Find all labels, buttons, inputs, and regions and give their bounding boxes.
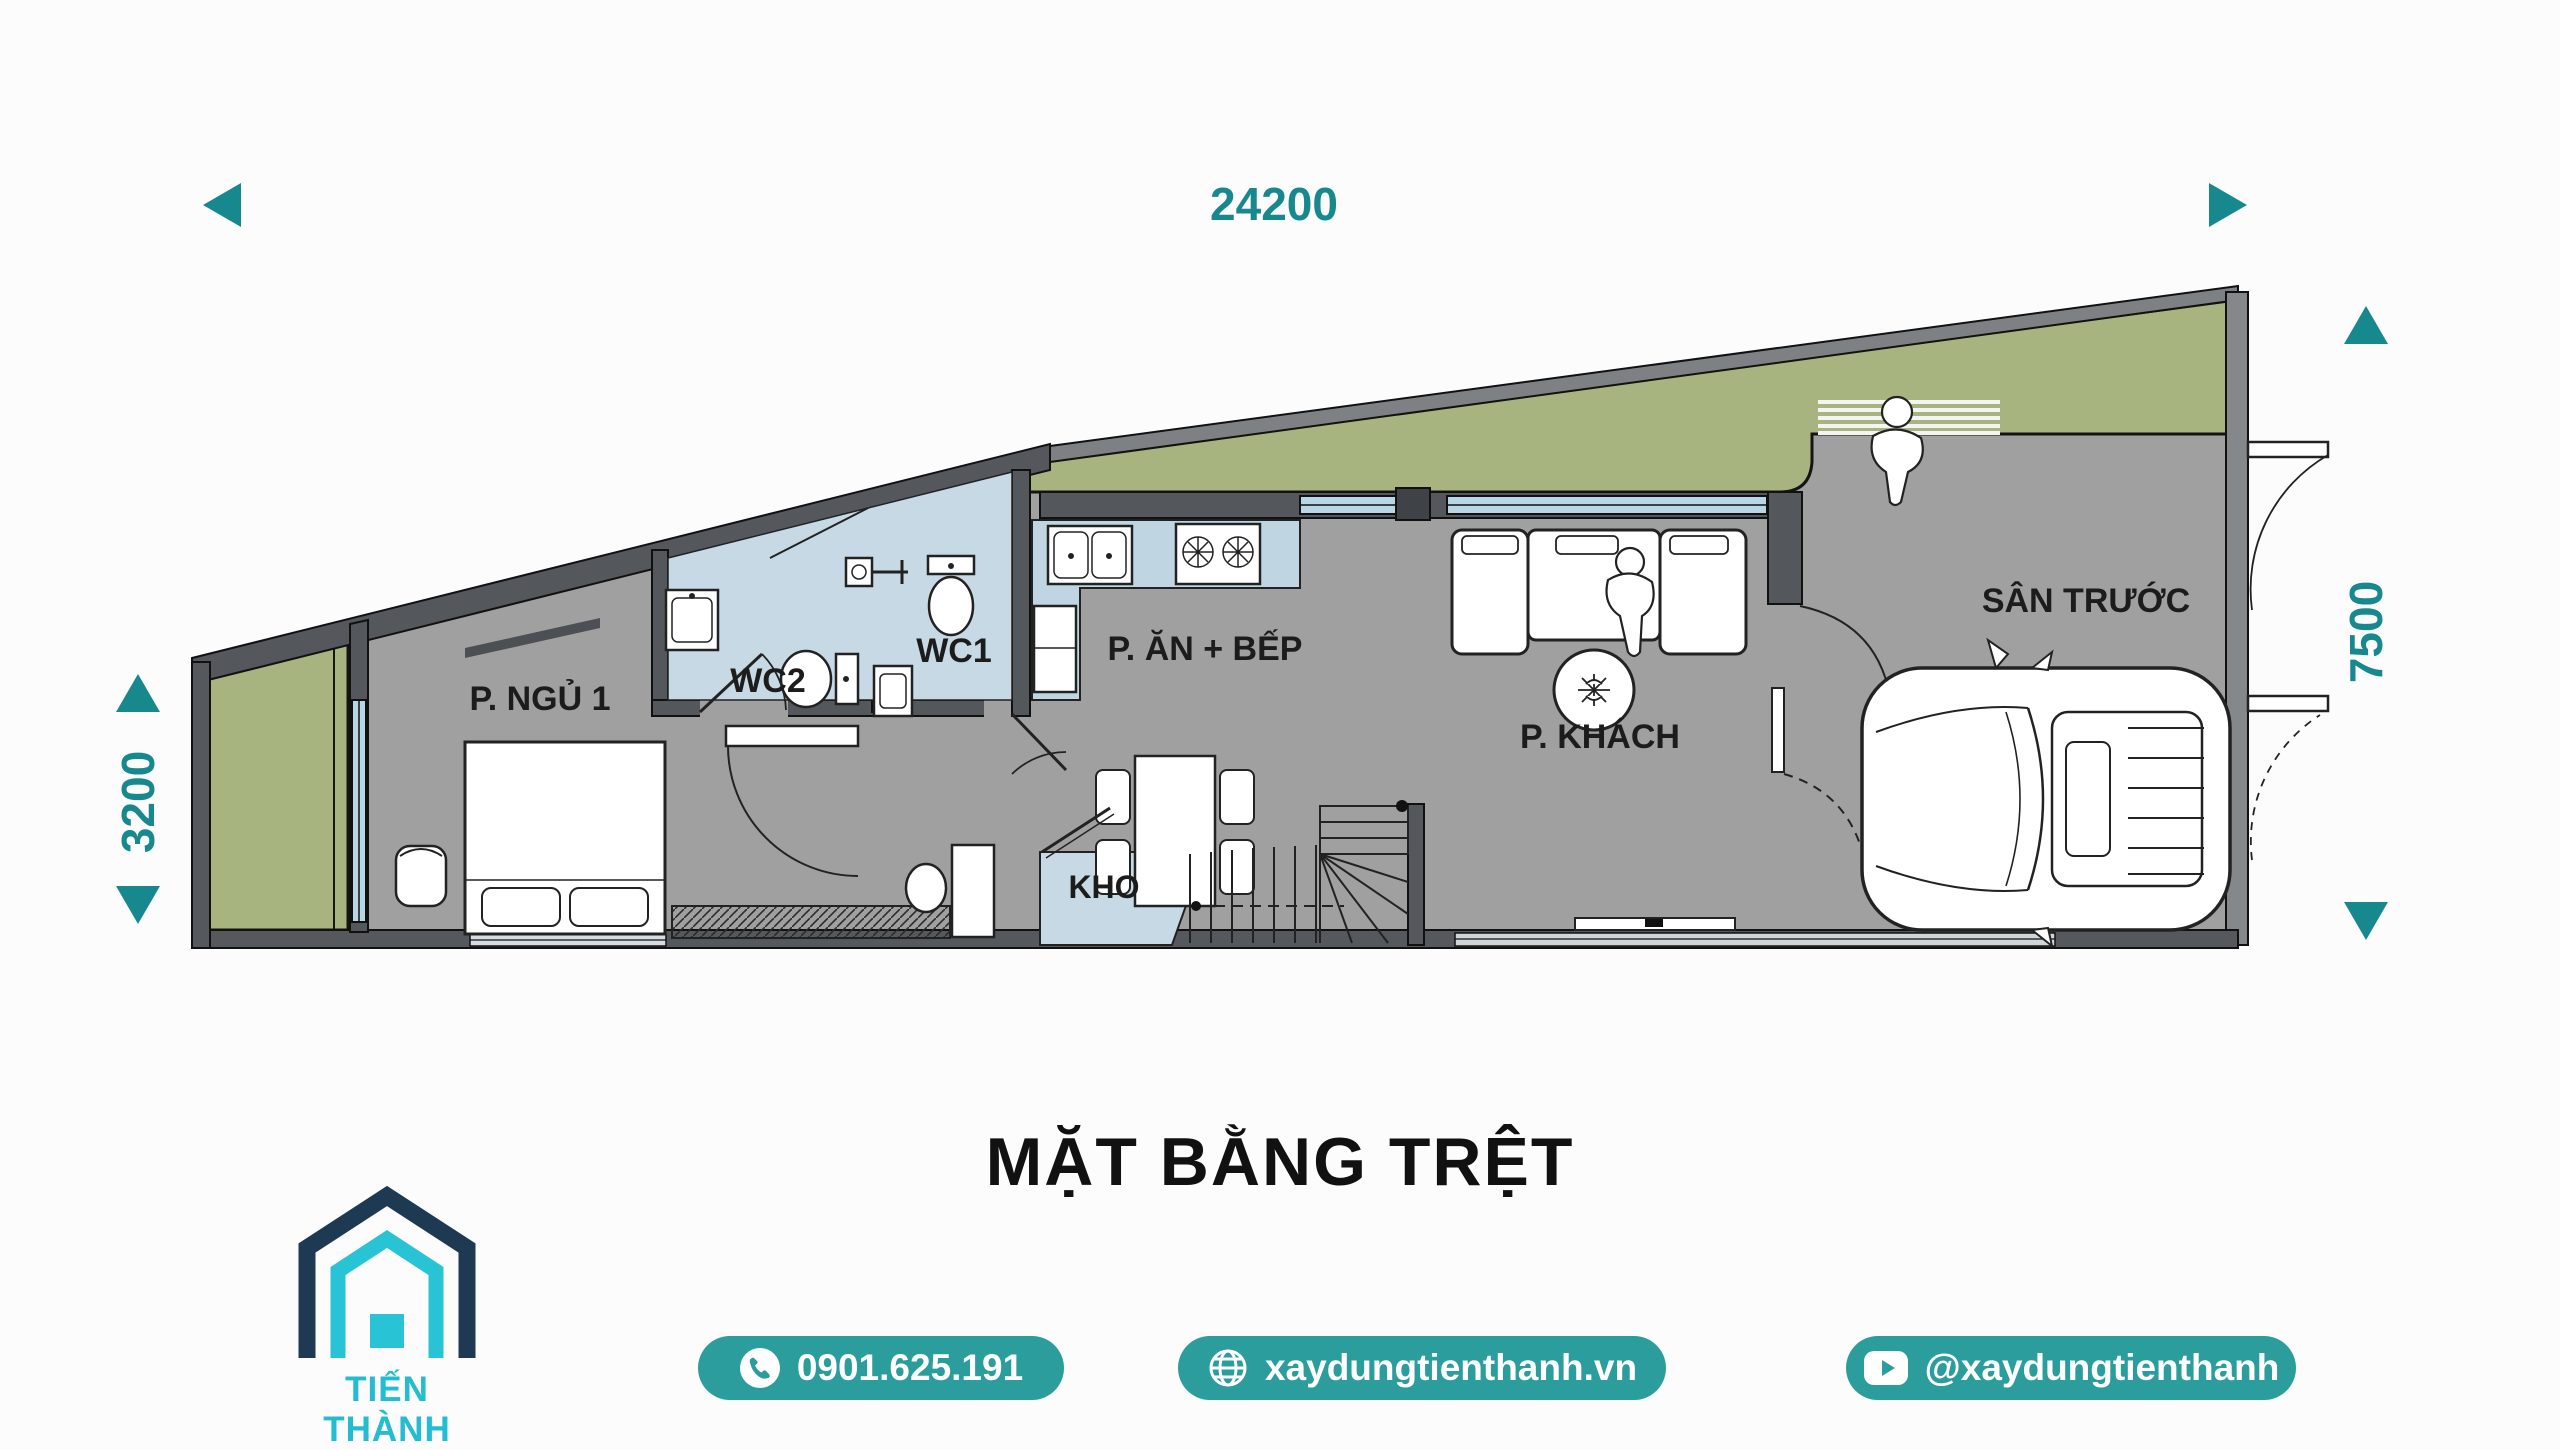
website-url: xaydungtienthanh.vn	[1265, 1347, 1637, 1389]
desk-chair	[906, 864, 946, 912]
dimension-right: 7500	[2340, 306, 2392, 940]
wardrobe	[672, 906, 950, 938]
living-window	[1447, 496, 1767, 514]
cooktop	[1176, 524, 1260, 584]
room-label-living: P. KHÁCH	[1520, 718, 1680, 756]
page-title: MẶT BẰNG TRỆT	[986, 1123, 1575, 1200]
dimension-right-label: 7500	[2340, 581, 2392, 683]
floorplan-page: { "plan": { "title": "MẶT BẰNG TRỆT", "d…	[0, 0, 2560, 1439]
brand-logo: TIẾN THÀNH	[282, 1186, 492, 1450]
phone-badge[interactable]: 0901.625.191	[698, 1336, 1064, 1400]
website-badge[interactable]: xaydungtienthanh.vn	[1178, 1336, 1666, 1400]
sofa	[1452, 530, 1746, 654]
wc2-sink	[666, 590, 718, 650]
globe-icon	[1207, 1347, 1249, 1389]
room-label-kho: KHO	[1068, 869, 1139, 905]
bedroom-bottom-window	[470, 934, 666, 946]
bedroom-chair	[396, 846, 446, 906]
arrow-up-right-icon	[2344, 306, 2388, 344]
arrow-up-left-icon	[116, 674, 160, 712]
bedroom-window	[352, 700, 366, 922]
youtube-icon	[1863, 1350, 1909, 1386]
dimension-left-label: 3200	[112, 751, 164, 853]
dimension-top-label: 24200	[1210, 178, 1338, 230]
car	[1862, 640, 2230, 946]
arrow-right-icon	[2209, 183, 2247, 227]
tv-console	[1575, 918, 1735, 930]
living-bottom-window	[1455, 933, 2055, 946]
arrow-down-right-icon	[2344, 902, 2388, 940]
room-label-wc1: WC1	[916, 632, 992, 670]
wc1-toilet	[928, 556, 974, 635]
arrow-left-icon	[203, 183, 241, 227]
room-label-yard: SÂN TRƯỚC	[1982, 582, 2190, 620]
arrow-down-left-icon	[116, 886, 160, 924]
kitchen-sink	[1048, 526, 1132, 584]
phone-number: 0901.625.191	[797, 1347, 1023, 1389]
bed	[465, 742, 665, 934]
social-badge[interactable]: @xaydungtienthanh	[1846, 1336, 2296, 1400]
phone-icon	[739, 1347, 781, 1389]
left-garden	[208, 636, 348, 930]
dimension-top: 24200	[203, 178, 2247, 230]
house-logo-icon	[282, 1186, 492, 1361]
room-label-kitchen: P. ĂN + BẾP	[1108, 630, 1303, 668]
social-handle: @xaydungtienthanh	[1925, 1347, 2280, 1389]
kitchen-window	[1300, 496, 1396, 514]
room-label-wc2: WC2	[730, 662, 806, 700]
brand-name: TIẾN THÀNH	[282, 1370, 492, 1450]
fridge	[1034, 606, 1076, 692]
hall-sink	[874, 666, 912, 716]
dimension-left: 3200	[112, 674, 164, 924]
room-label-bedroom1: P. NGỦ 1	[469, 680, 610, 718]
